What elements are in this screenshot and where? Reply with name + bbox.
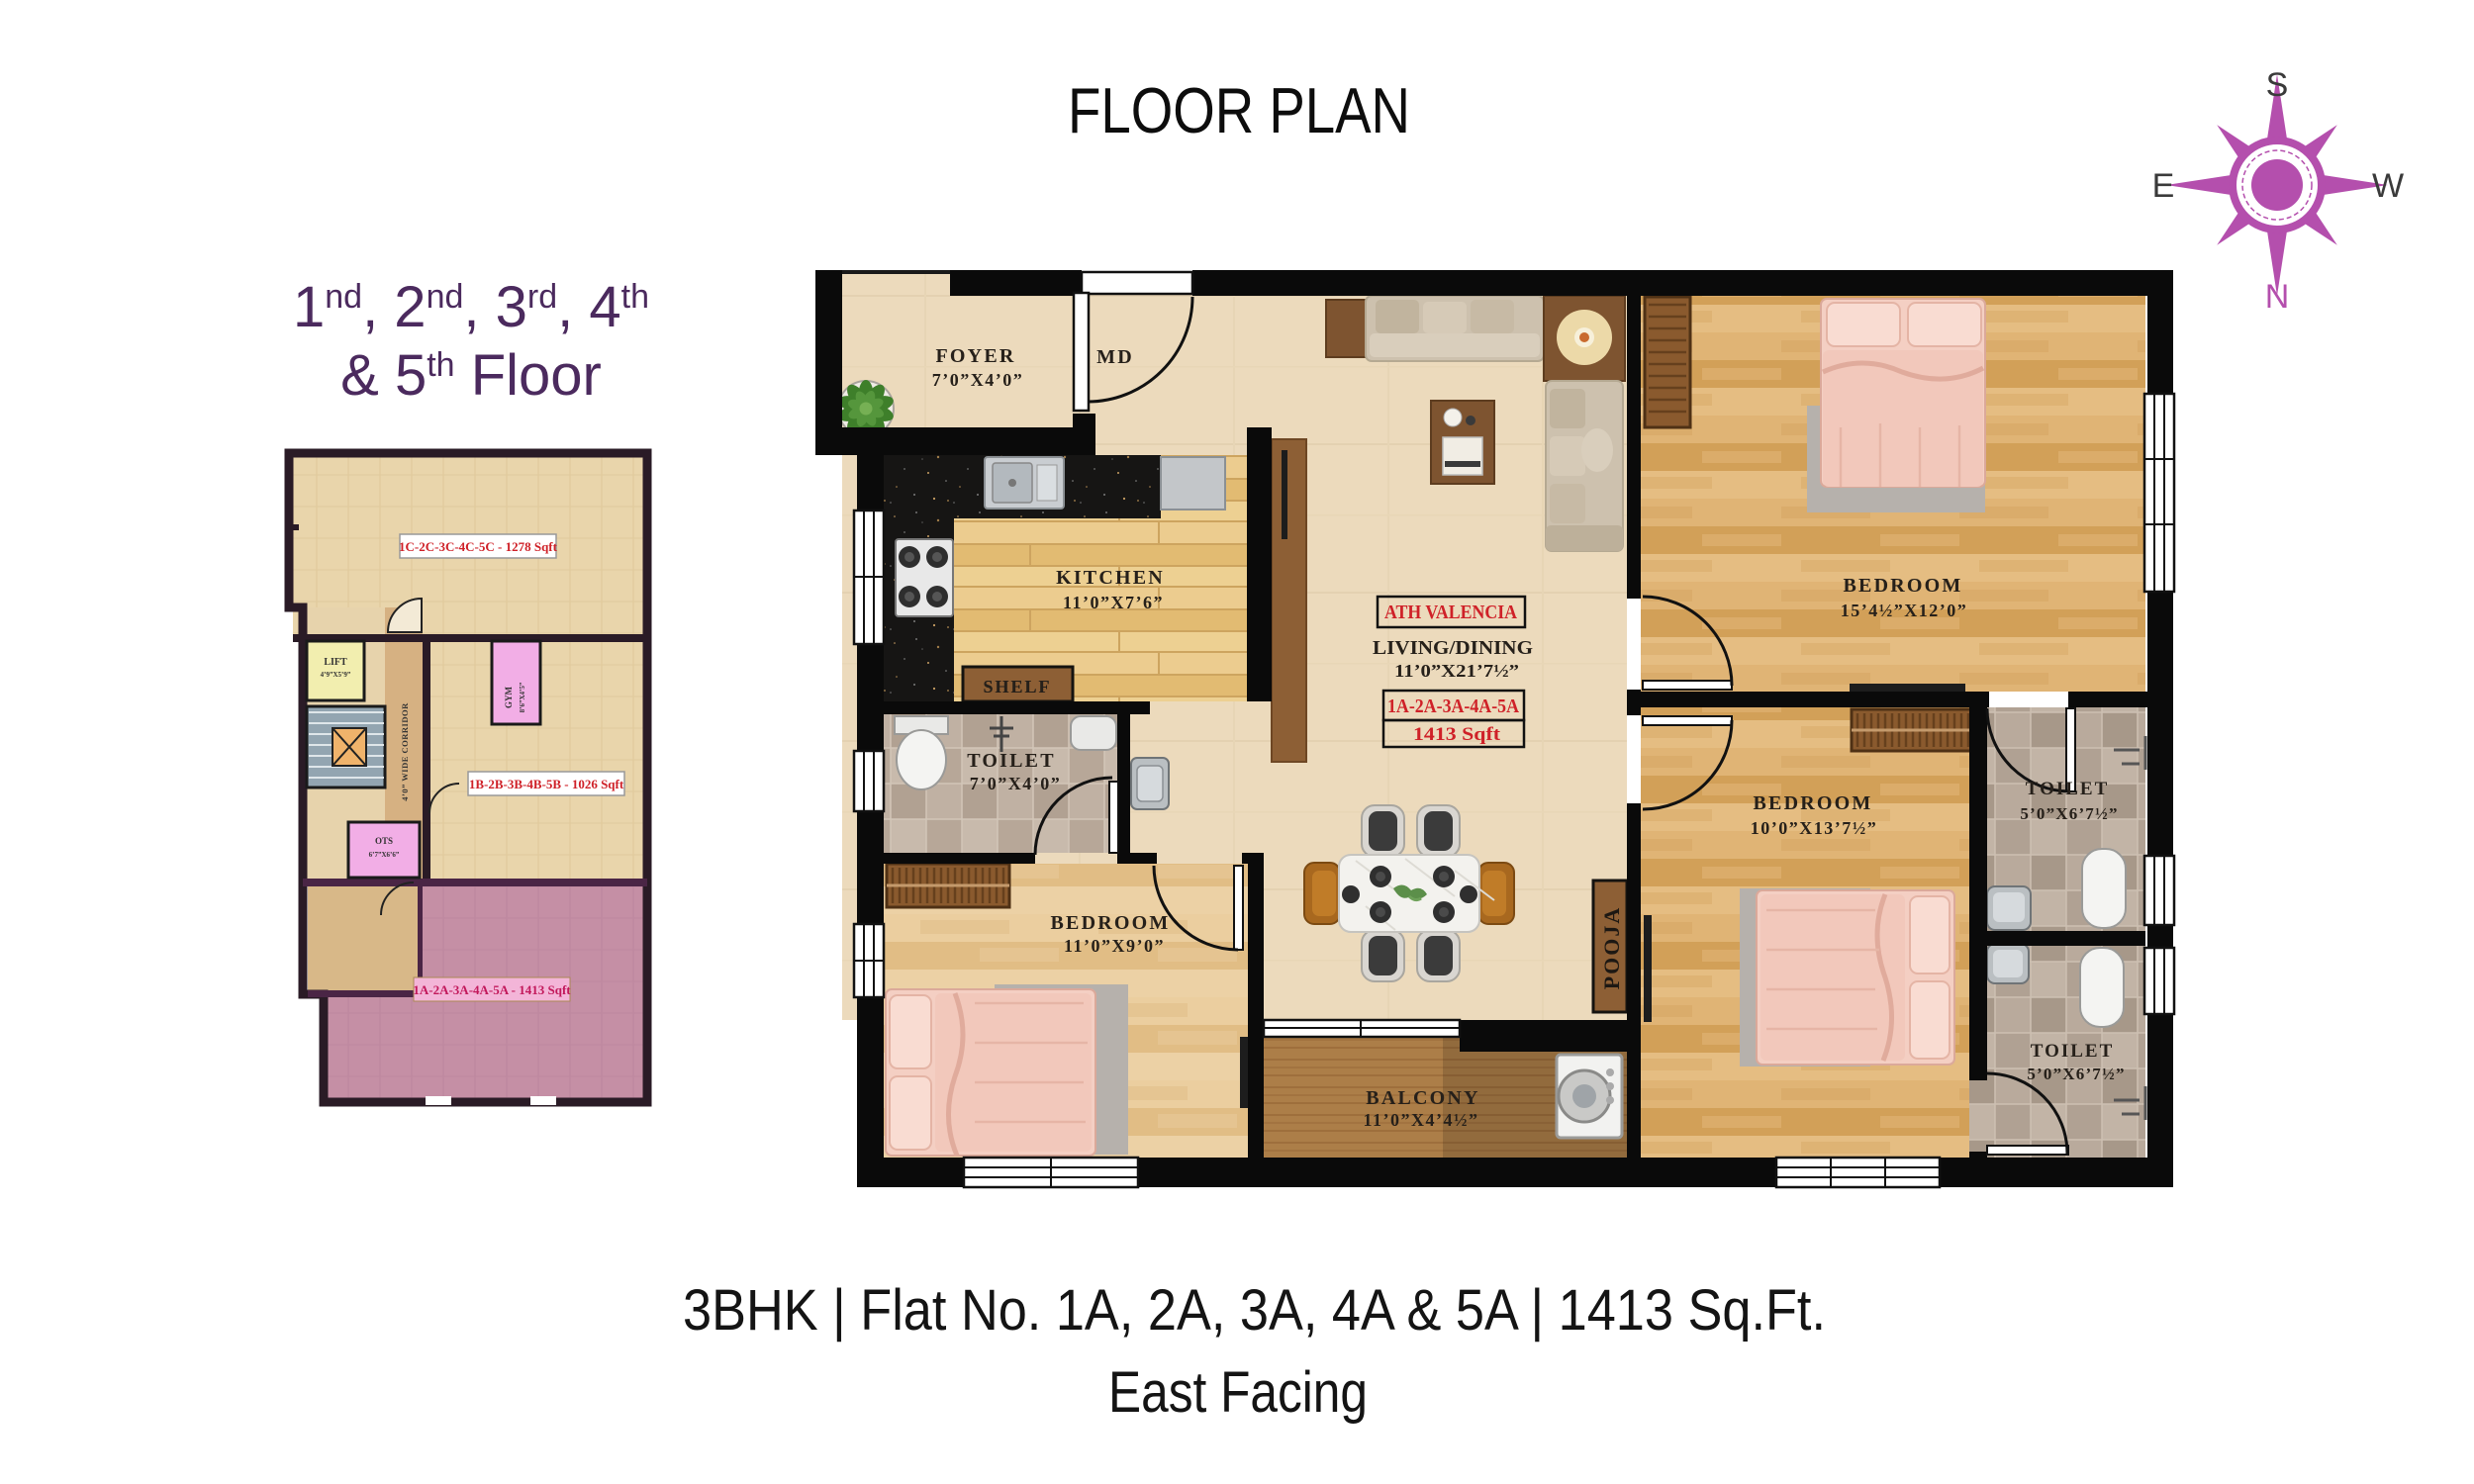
svg-text:3BHK | Flat No. 1A, 2A, 3A, 4A: 3BHK | Flat No. 1A, 2A, 3A, 4A & 5A | 14…	[683, 1278, 1826, 1343]
svg-text:5’0”X6’7½”: 5’0”X6’7½”	[2027, 1065, 2125, 1083]
svg-text:BALCONY: BALCONY	[1366, 1087, 1479, 1109]
svg-text:FOYER: FOYER	[936, 345, 1016, 367]
svg-text:LIFT: LIFT	[324, 657, 347, 668]
svg-text:ATH VALENCIA: ATH VALENCIA	[1384, 602, 1517, 623]
svg-text:1A-2A-3A-4A-5A - 1413 Sqft: 1A-2A-3A-4A-5A - 1413 Sqft	[413, 982, 571, 997]
svg-text:1B-2B-3B-4B-5B - 1026 Sqft: 1B-2B-3B-4B-5B - 1026 Sqft	[469, 777, 624, 791]
svg-text:POOJA: POOJA	[1599, 906, 1624, 990]
svg-text:TOILET: TOILET	[967, 750, 1056, 772]
svg-text:East Facing: East Facing	[1108, 1360, 1368, 1425]
svg-text:BEDROOM: BEDROOM	[1754, 792, 1873, 814]
svg-text:6’7”X6’6”: 6’7”X6’6”	[369, 851, 400, 859]
svg-text:11’0”X7’6”: 11’0”X7’6”	[1063, 593, 1164, 612]
svg-text:4’0” WIDE CORRIDOR: 4’0” WIDE CORRIDOR	[400, 702, 410, 801]
svg-text:E: E	[2152, 167, 2175, 205]
svg-text:10’0”X13’7½”: 10’0”X13’7½”	[1751, 818, 1878, 838]
svg-text:MD: MD	[1096, 346, 1134, 368]
svg-text:TOILET: TOILET	[2031, 1041, 2115, 1062]
svg-text:S: S	[2266, 66, 2289, 104]
svg-text:11’0”X9’0”: 11’0”X9’0”	[1064, 936, 1165, 956]
svg-text:1C-2C-3C-4C-5C - 1278 Sqft: 1C-2C-3C-4C-5C - 1278 Sqft	[399, 539, 558, 554]
svg-text:7’0”X4’0”: 7’0”X4’0”	[970, 774, 1062, 793]
svg-text:SHELF: SHELF	[983, 677, 1051, 696]
svg-text:15’4½”X12’0”: 15’4½”X12’0”	[1841, 601, 1968, 620]
svg-text:11’0”X4’4½”: 11’0”X4’4½”	[1364, 1110, 1479, 1130]
svg-text:W: W	[2372, 167, 2404, 205]
svg-text:7’0”X4’0”: 7’0”X4’0”	[932, 370, 1024, 390]
svg-text:11’0”X21’7½”: 11’0”X21’7½”	[1394, 661, 1519, 681]
svg-text:5’0”X6’7½”: 5’0”X6’7½”	[2020, 804, 2118, 823]
svg-text:FLOOR PLAN: FLOOR PLAN	[1068, 74, 1410, 146]
svg-text:1413 Sqft: 1413 Sqft	[1413, 724, 1501, 745]
svg-text:GYM: GYM	[504, 687, 514, 709]
svg-text:N: N	[2265, 278, 2290, 316]
svg-text:4’9”X5’9”: 4’9”X5’9”	[321, 671, 351, 679]
svg-text:LIVING/DINING: LIVING/DINING	[1373, 637, 1533, 659]
svg-text:BEDROOM: BEDROOM	[1844, 575, 1963, 597]
svg-text:1A-2A-3A-4A-5A: 1A-2A-3A-4A-5A	[1387, 696, 1519, 717]
svg-text:OTS: OTS	[375, 836, 393, 846]
svg-text:8’6”X4’5”: 8’6”X4’5”	[519, 682, 526, 712]
svg-text:KITCHEN: KITCHEN	[1056, 567, 1165, 589]
svg-text:TOILET: TOILET	[2026, 779, 2110, 799]
svg-text:& 5th Floor: & 5th Floor	[340, 343, 602, 408]
svg-text:BEDROOM: BEDROOM	[1051, 912, 1171, 934]
